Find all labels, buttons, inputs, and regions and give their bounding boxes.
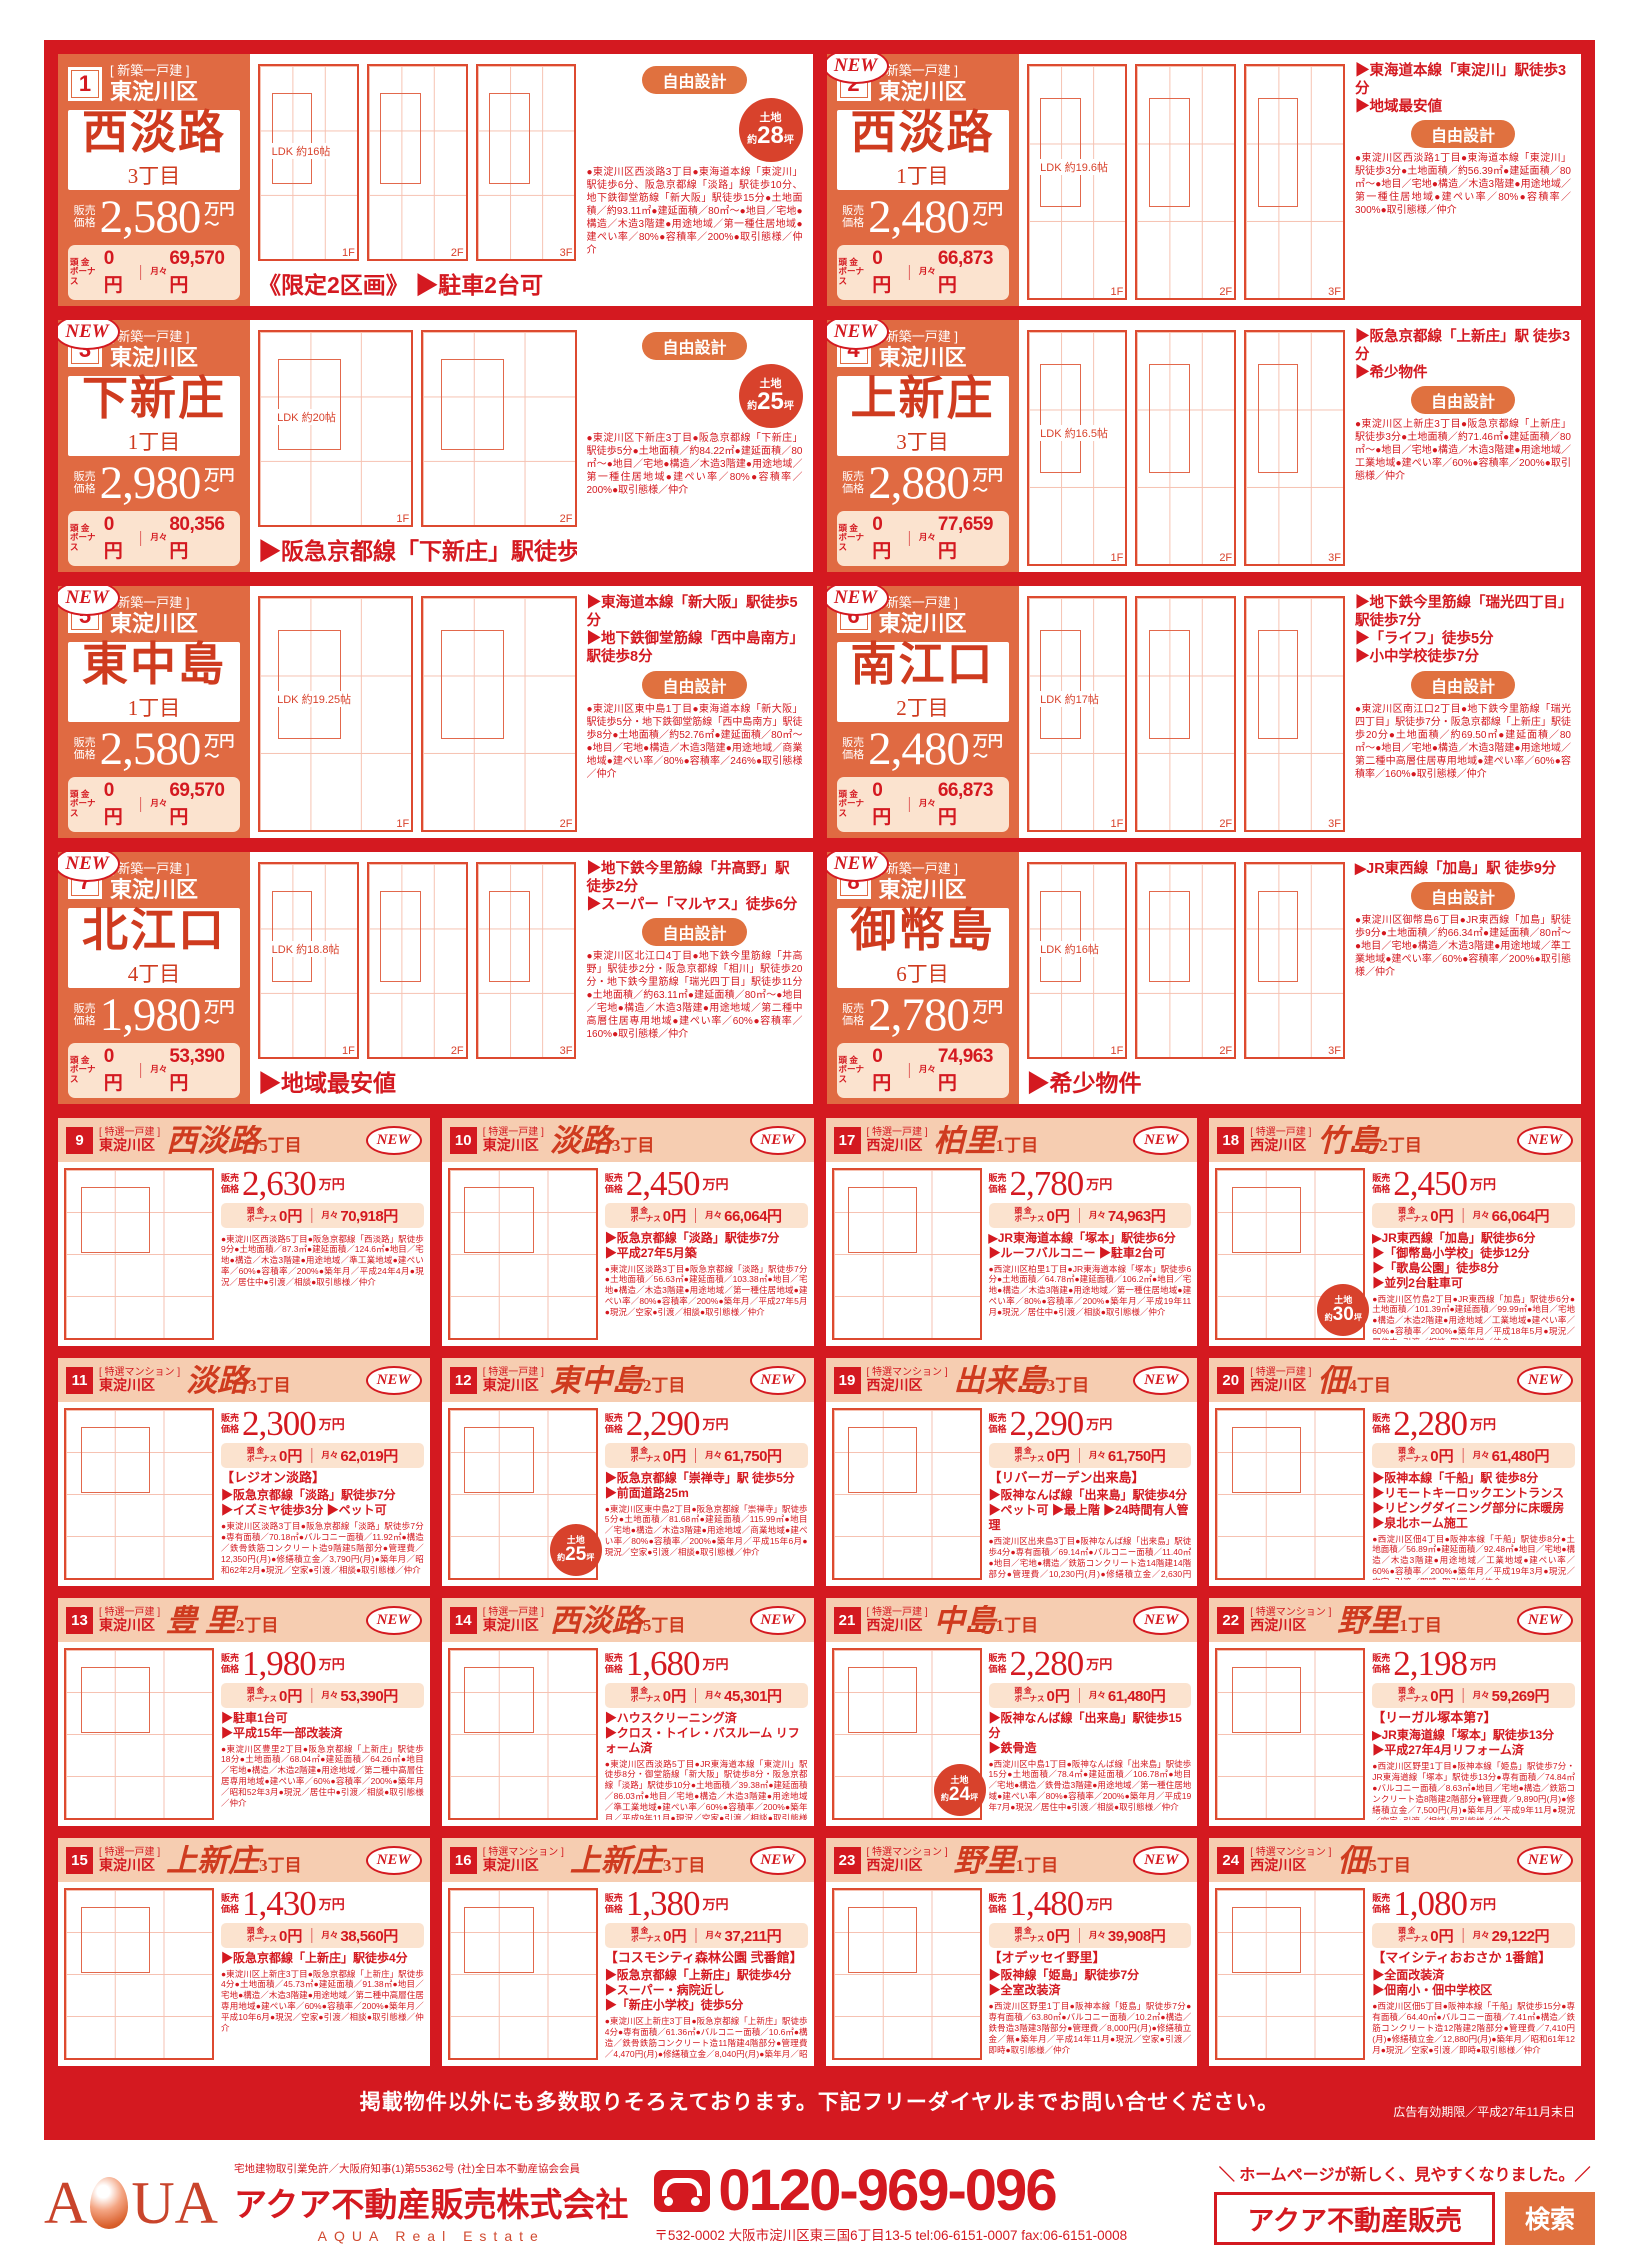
listing-number: 17 [834,1127,861,1154]
listing-ward: 東淀川区 [110,345,198,370]
feature-bullet: ▶佃南小・佃中学校区 [1372,1983,1575,1998]
listing-name: 柏里1丁目 [934,1125,1039,1156]
feature-bullet: ▶全室改装済 [989,1983,1192,1998]
new-badge: NEW [1517,1846,1573,1875]
listing-ward: 西淀川区 [1250,1138,1311,1153]
listing-name: 出来島3丁目 [954,1365,1090,1396]
price-row: 販売価格 2,580 万円〜 [68,728,240,770]
floor-plan [64,1168,214,1340]
feature-bullet: ▶ハウスクリーニング済 [605,1711,808,1726]
floor-plan: 2F [1135,596,1236,832]
monthly-value: 62,019円 [340,1445,397,1466]
listing-number: 10 [450,1127,477,1154]
building-name: 【マイシティおおさか 1番館】 [1372,1951,1575,1966]
feature-bullet: ▶JR東西線「加島」駅徒歩6分 [1372,1231,1575,1246]
floor-label: 1F [1110,286,1123,298]
feature-bullet: ▶小中学校徒歩7分 [1355,648,1571,666]
price-value: 2,450 [1393,1168,1467,1200]
listing-name: 南江口 [851,642,995,688]
listing-description: ●東淀川区淡路3丁目●阪急京都線「淡路」駅徒歩7分●専有面積／70.18㎡●バル… [221,1521,424,1580]
monthly-payment: 頭 金ボーナス 0円｜ 月々 53,390円 [221,1683,424,1708]
property-listing-big: NEW 6 [ 新築一戸建 ] 東淀川区 南江口 2丁目 販売価格 2,480 … [827,586,1582,838]
price-value: 2,880 [868,462,969,504]
price-value: 1,080 [1393,1888,1467,1920]
new-badge: NEW [366,1606,422,1635]
search-input[interactable]: アクア不動産販売 [1214,2192,1495,2245]
floor-plan: 2F [421,330,576,527]
listing-ward: 東淀川区 [99,1858,160,1873]
floor-plan [1215,1888,1365,2060]
property-listing-small: 14 [ 特選一戸建 ] 東淀川区 西淡路5丁目 NEW 販売価格 1,680 … [442,1598,814,1826]
listing-name-card: 西淡路 3丁目 [68,110,240,190]
feature-bullet: ▶希少物件 [1355,364,1571,382]
monthly-payment: 頭 金ボーナス 0円｜ 月々 61,750円 [605,1443,808,1468]
floor-label: 2F [1219,1045,1232,1057]
price-value: 1,980 [100,994,201,1036]
listing-header: 18 [ 特選一戸建 ] 西淀川区 竹島2丁目 NEW [1209,1118,1581,1162]
floor-plan: 2F [1135,64,1236,300]
flyer-page: { "shared": { "new_label": "NEW", "price… [0,0,1639,2267]
floor-plan-area: LDK 約16帖1F2F3F ▶希少物件 [1019,852,1354,1104]
floor-label: 1F [396,513,409,525]
price-row: 販売価格 2,980 万円〜 [68,462,240,504]
building-name: 【オデッセイ野里】 [989,1951,1192,1966]
monthly-value: 70,918円 [340,1205,397,1226]
listing-ward: 東淀川区 [483,1618,544,1633]
new-badge: NEW [1517,1606,1573,1635]
monthly-value: 61,750円 [1108,1445,1165,1466]
notice-strip: 掲載物件以外にも多数取りそろえております。下記フリーダイヤルまでお問い合せくださ… [58,2078,1581,2124]
listing-name: 佃5丁目 [1337,1845,1411,1876]
listing-ward: 東淀川区 [483,1138,544,1153]
monthly-payment: 頭 金ボーナス 0円｜ 月々 37,211円 [605,1923,808,1948]
free-design-badge: 自由設計 [1411,882,1515,910]
free-design-badge: 自由設計 [1411,671,1515,699]
monthly-value: 37,211円 [725,1925,782,1946]
property-listing-big: NEW 8 [ 新築一戸建 ] 東淀川区 御幣島 6丁目 販売価格 2,780 … [827,852,1582,1104]
feature-bullet: ▶リモートキーロックエントランス [1372,1486,1575,1501]
featured-listings-grid: 1 [ 新築一戸建 ] 東淀川区 西淡路 3丁目 販売価格 2,580 万円〜 … [58,54,1581,1104]
monthly-value: 53,390円 [169,1046,238,1095]
listing-header: 23 [ 特選マンション ] 西淀川区 野里1丁目 NEW [826,1838,1198,1882]
price-value: 2,630 [242,1168,316,1200]
room-label: LDK 約19.25帖 [275,691,353,707]
feature-bullet: ▶平成27年4月リフォーム済 [1372,1743,1575,1758]
listing-chome: 1丁目 [128,692,181,722]
feature-bullet: ▶平成27年5月築 [605,1246,808,1261]
listing-type: [ 新築一戸建 ] [879,862,967,877]
floor-label: 1F [396,818,409,830]
feature-bullet: ▶地下鉄今里筋線「瑞光四丁目」駅徒歩7分 [1355,594,1571,630]
land-area-badge: 土地 約28坪 [739,98,803,162]
feature-bullet: ▶リビングダイニング部分に床暖房 [1372,1501,1575,1516]
price-row: 販売価格 1,680 万円 [605,1648,808,1680]
listing-number: 24 [1217,1847,1244,1874]
listing-name: 西淡路5丁目 [166,1125,302,1156]
property-listing-big: NEW 7 [ 新築一戸建 ] 東淀川区 北江口 4丁目 販売価格 1,980 … [58,852,813,1104]
feature-column: ▶東海道本線「新大阪」駅徒歩5分▶地下鉄御堂筋線「西中島南方」駅徒歩8分 自由設… [585,586,813,838]
floor-plan: 3F [476,64,577,261]
new-badge: NEW [1133,1606,1189,1635]
listing-name: 下新庄 [82,376,226,422]
listing-type: [ 新築一戸建 ] [110,862,198,877]
property-listing-small: 10 [ 特選一戸建 ] 東淀川区 淡路3丁目 NEW 販売価格 2,450 万… [442,1118,814,1346]
feature-bullet: ▶地下鉄御堂筋線「西中島南方」駅徒歩8分 [587,630,803,666]
property-listing-small: 18 [ 特選一戸建 ] 西淀川区 竹島2丁目 NEW 販売価格 2,450 万… [1209,1118,1581,1346]
listing-ward: 西淀川区 [867,1138,928,1153]
listing-chome: 6丁目 [896,958,949,988]
listing-description: ●東淀川区東中島2丁目●阪急京都線「崇禅寺」駅徒歩5分●土地面積／81.68㎡●… [605,1504,808,1581]
listing-description: ●西淀川区柏里1丁目●JR東海道本線「塚本」駅徒歩6分●土地面積／64.78㎡●… [989,1264,1192,1341]
price-row: 販売価格 2,480 万円〜 [837,196,1009,238]
price-row: 販売価格 2,630 万円 [221,1168,424,1200]
floor-plan-area: LDK 約19.25帖1F2F [250,586,585,838]
floor-label: 1F [1110,552,1123,564]
property-listing-small: 19 [ 特選マンション ] 西淀川区 出来島3丁目 NEW 販売価格 2,29… [826,1358,1198,1586]
listing-description: ●西淀川区佃4丁目●阪神本線「千船」駅徒歩8分●土地面積／56.89㎡●建延面積… [1372,1534,1575,1581]
new-badge: NEW [1517,1126,1573,1155]
feature-bullet: ▶イズミヤ徒歩3分 ▶ペット可 [221,1503,424,1518]
floor-plan [448,1648,598,1820]
price-row: 販売価格 2,880 万円〜 [837,462,1009,504]
feature-column: ▶阪急京都線「上新庄」駅 徒歩3分▶希少物件 自由設計 土地 約坪 ●東淀川区上… [1353,320,1581,572]
listing-info-panel: 3 [ 新築一戸建 ] 東淀川区 下新庄 1丁目 販売価格 2,980 万円〜 … [58,320,250,572]
search-button[interactable]: 検索 [1505,2192,1595,2245]
feature-bullet: ▶クロス・トイレ・バスルーム リフォーム済 [605,1726,808,1756]
listing-description: ●東淀川区西淡路5丁目●JR東海道本線「東淀川」駅徒歩8分・御堂筋線「新大阪」駅… [605,1759,808,1821]
feature-bullet: ▶鉄骨造 [989,1741,1192,1756]
listing-number: 20 [1217,1367,1244,1394]
footer: A UA 宅地建物取引業免許／大阪府知事(1)第55362号 (社)全日本不動産… [44,2150,1595,2255]
listing-type: [ 新築一戸建 ] [110,64,198,79]
feature-bullet: ▶東海道本線「新大阪」駅徒歩5分 [587,594,803,630]
monthly-value: 61,750円 [724,1445,781,1466]
listing-number: 15 [66,1847,93,1874]
monthly-value: 61,480円 [1492,1445,1549,1466]
listing-description: ●東淀川区上新庄3丁目●阪急京都線「上新庄」駅徒歩4分●土地面積／45.73㎡●… [221,1969,424,2061]
freedial-icon [654,2170,710,2212]
property-listing-big: NEW 4 [ 新築一戸建 ] 東淀川区 上新庄 3丁目 販売価格 2,880 … [827,320,1582,572]
listing-ward: 東淀川区 [99,1618,160,1633]
listing-name-card: 上新庄 3丁目 [837,376,1009,456]
price-value: 1,680 [626,1648,700,1680]
feature-column: ▶JR東西線「加島」駅 徒歩9分 自由設計 土地 約坪 ●東淀川区御幣島6丁目●… [1353,852,1581,1104]
feature-column: 自由設計 土地 約25坪 ●東淀川区下新庄3丁目●阪急京都線「下新庄」駅徒歩5分… [585,320,813,572]
logo-letter-a: A [44,2173,87,2233]
floor-label: 1F [1110,1045,1123,1057]
listing-header: 20 [ 特選一戸建 ] 西淀川区 佃4丁目 NEW [1209,1358,1581,1402]
feature-bullet: ▶ペット可 ▶最上階 ▶24時間有人管理 [989,1503,1192,1533]
feature-bullet: ▶阪急京都線「上新庄」駅 徒歩3分 [1355,328,1571,364]
listing-ward: 西淀川区 [1250,1378,1311,1393]
listing-header: 14 [ 特選一戸建 ] 東淀川区 西淡路5丁目 NEW [442,1598,814,1642]
notice-text: 掲載物件以外にも多数取りそろえております。下記フリーダイヤルまでお問い合せくださ… [360,2086,1280,2116]
listing-header: 16 [ 特選マンション ] 東淀川区 上新庄3丁目 NEW [442,1838,814,1882]
floor-label: 3F [560,1045,573,1057]
listing-description: ●東淀川区上新庄3丁目●阪急京都線「上新庄」駅徒歩3分●土地面積／約71.46㎡… [1355,418,1571,566]
new-badge: NEW [750,1846,806,1875]
monthly-payment: 頭 金ボーナス 0円｜ 月々 66,064円 [1372,1203,1575,1228]
listing-headline: 《限定2区画》 ▶駐車2台可 [258,266,577,300]
listing-name: 上新庄3丁目 [166,1845,302,1876]
listing-chome: 3丁目 [128,160,181,190]
feature-bullet: ▶「歌島公園」徒歩8分 [1372,1261,1575,1276]
feature-bullet: ▶阪急京都線「淡路」駅徒歩7分 [221,1488,424,1503]
price-value: 2,300 [242,1408,316,1440]
building-name: 【リバーガーデン出来島】 [989,1471,1192,1486]
new-badge: NEW [1133,1126,1189,1155]
free-design-badge: 自由設計 [642,66,746,94]
floor-plan-area: LDK 約16帖1F2F3F 《限定2区画》 ▶駐車2台可 [250,54,585,306]
price-row: 販売価格 1,480 万円 [989,1888,1192,1920]
listing-ward: 東淀川区 [483,1858,564,1873]
listing-name: 西淡路 [82,110,226,156]
monthly-payment: 頭 金ボーナス 0円｜ 月々 66,064円 [605,1203,808,1228]
monthly-value: 53,390円 [340,1685,397,1706]
room-label: LDK 約16帖 [270,143,333,159]
price-value: 2,450 [626,1168,700,1200]
listing-name-card: 下新庄 1丁目 [68,376,240,456]
feature-column: 自由設計 土地 約28坪 ●東淀川区西淡路3丁目●東海道本線「東淀川」駅徒歩6分… [585,54,813,306]
price-row: 販売価格 2,290 万円 [605,1408,808,1440]
listing-number: 14 [450,1607,477,1634]
monthly-payment: 頭 金ボーナス 0円｜ 月々 61,480円 [1372,1443,1575,1468]
listing-type: [ 新築一戸建 ] [879,64,967,79]
property-listing-small: 12 [ 特選一戸建 ] 東淀川区 東中島2丁目 NEW 販売価格 2,290 … [442,1358,814,1586]
listing-description: ●西淀川区出来島3丁目●阪神なんば線「出来島」駅徒歩4分●専有面積／69.14㎡… [989,1536,1192,1580]
listing-ward: 東淀川区 [110,79,198,104]
price-row: 販売価格 2,480 万円〜 [837,728,1009,770]
listing-ward: 東淀川区 [483,1378,544,1393]
listing-name: 西淡路5丁目 [550,1605,686,1636]
listing-number: 22 [1217,1607,1244,1634]
listing-ward: 東淀川区 [879,877,967,902]
property-listing-big: NEW 3 [ 新築一戸建 ] 東淀川区 下新庄 1丁目 販売価格 2,980 … [58,320,813,572]
listing-info-panel: 1 [ 新築一戸建 ] 東淀川区 西淡路 3丁目 販売価格 2,580 万円〜 … [58,54,250,306]
monthly-value: 29,122円 [1492,1925,1549,1946]
price-value: 2,290 [626,1408,700,1440]
free-design-badge: 自由設計 [642,332,746,360]
feature-column: ▶地下鉄今里筋線「瑞光四丁目」駅徒歩7分▶「ライフ」徒歩5分▶小中学校徒歩7分 … [1353,586,1581,838]
land-area-badge: 土地 約24坪 [934,1764,986,1816]
room-label: LDK 約17帖 [1038,691,1101,707]
monthly-value: 74,963円 [938,1046,1007,1095]
monthly-value: 77,659円 [938,514,1007,563]
floor-plan: 2F [1135,862,1236,1059]
new-badge: NEW [1517,1366,1573,1395]
floor-plan: LDK 約17帖1F [1027,596,1128,832]
monthly-payment: 頭 金ボーナス 0円｜ 月々 45,301円 [605,1683,808,1708]
price-value: 2,280 [1010,1648,1084,1680]
floor-plan-area: LDK 約18.8帖1F2F3F ▶地域最安値 [250,852,585,1104]
listing-type: [ 新築一戸建 ] [879,330,967,345]
selected-listings-grid: 9 [ 特選一戸建 ] 東淀川区 西淡路5丁目 NEW 販売価格 2,630 万… [58,1118,1581,2066]
floor-plan: 3F [1244,64,1345,300]
monthly-payment: 頭 金ボーナス 0円｜ 月々 61,750円 [989,1443,1192,1468]
listing-ward: 西淀川区 [1250,1618,1331,1633]
floor-label: 1F [1110,818,1123,830]
listing-name-card: 南江口 2丁目 [837,642,1009,722]
listing-name-card: 東中島 1丁目 [68,642,240,722]
building-name: 【リーガル塚本第7】 [1372,1711,1575,1726]
company-name: アクア不動産販売株式会社 [234,2178,628,2226]
listing-name: 豊 里2丁目 [166,1605,278,1636]
new-badge: NEW [750,1126,806,1155]
listing-number: 9 [66,1127,93,1154]
monthly-payment: 頭 金ボーナス 0円｜ 月々 29,122円 [1372,1923,1575,1948]
listing-name: 御幣島 [851,908,995,954]
floor-label: 3F [1328,286,1341,298]
listing-ward: 東淀川区 [110,611,198,636]
listing-type: [ 新築一戸建 ] [110,330,198,345]
listing-number: 21 [834,1607,861,1634]
listing-description: ●東淀川区西淡路1丁目●東海道本線「東淀川」駅徒歩3分●土地面積／約56.39㎡… [1355,152,1571,300]
monthly-payment: 頭 金ボーナス 0円｜ 月々 77,659円 [837,511,1009,566]
monthly-payment: 頭 金ボーナス 0円｜ 月々 62,019円 [221,1443,424,1468]
company-name-en: AQUA Real Estate [234,2228,628,2244]
floor-label: 2F [451,1045,464,1057]
listing-name: 野里1丁目 [1337,1605,1442,1636]
price-row: 販売価格 2,780 万円〜 [837,994,1009,1036]
feature-bullet: ▶並列2台駐車可 [1372,1276,1575,1291]
feature-bullet: ▶阪神本線「千船」駅 徒歩8分 [1372,1471,1575,1486]
feature-bullet: ▶「ライフ」徒歩5分 [1355,630,1571,648]
feature-bullet: ▶阪神なんば線「出来島」駅徒歩4分 [989,1488,1192,1503]
property-listing-small: 17 [ 特選一戸建 ] 西淀川区 柏里1丁目 NEW 販売価格 2,780 万… [826,1118,1198,1346]
homepage-note: ＼ ホームページが新しく、見やすくなりました。／ [1219,2161,1591,2185]
listing-description: ●東淀川区西淡路3丁目●東海道本線「東淀川」駅徒歩6分、阪急京都線「淡路」駅徒歩… [587,166,803,300]
property-listing-small: 22 [ 特選マンション ] 西淀川区 野里1丁目 NEW 販売価格 2,198… [1209,1598,1581,1826]
price-row: 販売価格 2,300 万円 [221,1408,424,1440]
floor-plan [832,1408,982,1580]
listing-ward: 東淀川区 [879,345,967,370]
listing-number: 13 [66,1607,93,1634]
price-value: 2,580 [100,196,201,238]
feature-bullet: ▶阪急京都線「崇禅寺」駅 徒歩5分 [605,1471,808,1486]
feature-bullet: ▶JR東西線「加島」駅 徒歩9分 [1355,860,1571,878]
monthly-value: 69,570円 [169,248,238,297]
listing-description: ●東淀川区豊里2丁目●阪急京都線「上新庄」駅徒歩18分●土地面積／68.04㎡●… [221,1744,424,1821]
listing-description: ●西淀川区野里1丁目●阪神本線「姫島」駅徒歩7分・JR東海道線「塚本」駅徒歩13… [1372,1761,1575,1820]
listing-name-card: 御幣島 6丁目 [837,908,1009,988]
listing-headline: ▶阪急京都線「下新庄」駅徒歩5分 [258,532,577,566]
price-row: 販売価格 1,980 万円 [221,1648,424,1680]
monthly-payment: 頭 金ボーナス 0円｜ 月々 74,963円 [837,1043,1009,1098]
listing-info-panel: 4 [ 新築一戸建 ] 東淀川区 上新庄 3丁目 販売価格 2,880 万円〜 … [827,320,1019,572]
price-row: 販売価格 1,430 万円 [221,1888,424,1920]
listing-name: 西淡路 [851,110,995,156]
floor-plan: 2F [367,862,468,1059]
flyer-frame: 1 [ 新築一戸建 ] 東淀川区 西淡路 3丁目 販売価格 2,580 万円〜 … [44,40,1595,2140]
listing-description: ●西淀川区中島1丁目●阪神なんば線「出来島」駅徒歩15分●土地面積／78.4㎡●… [989,1759,1192,1821]
listing-info-panel: 7 [ 新築一戸建 ] 東淀川区 北江口 4丁目 販売価格 1,980 万円〜 … [58,852,250,1104]
monthly-value: 45,301円 [724,1685,781,1706]
listing-ward: 東淀川区 [879,79,967,104]
listing-header: 13 [ 特選一戸建 ] 東淀川区 豊 里2丁目 NEW [58,1598,430,1642]
new-badge: NEW [1133,1366,1189,1395]
listing-name: 中島1丁目 [934,1605,1039,1636]
listing-number: 18 [1217,1127,1244,1154]
price-row: 販売価格 1,380 万円 [605,1888,808,1920]
price-value: 2,580 [100,728,201,770]
floor-label: 2F [560,818,573,830]
room-label: LDK 約16帖 [1038,941,1101,957]
room-label: LDK 約20帖 [275,409,338,425]
new-badge: NEW [750,1606,806,1635]
monthly-value: 61,480円 [1108,1685,1165,1706]
listing-ward: 西淀川区 [867,1618,928,1633]
feature-bullet: ▶阪急京都線「淡路」駅徒歩7分 [605,1231,808,1246]
listing-name: 北江口 [82,908,226,954]
monthly-payment: 頭 金ボーナス 0円｜ 月々 61,480円 [989,1683,1192,1708]
monthly-payment: 頭 金ボーナス 0円｜ 月々 70,918円 [221,1203,424,1228]
price-row: 販売価格 2,780 万円 [989,1168,1192,1200]
monthly-payment: 頭 金ボーナス 0円｜ 月々 39,908円 [989,1923,1192,1948]
property-listing-small: 24 [ 特選マンション ] 西淀川区 佃5丁目 NEW 販売価格 1,080 … [1209,1838,1581,2066]
feature-bullet: ▶駐車1台可 [221,1711,424,1726]
egg-icon [90,2177,128,2229]
feature-bullet: ▶泉北ホーム施工 [1372,1516,1575,1531]
price-value: 2,780 [868,994,969,1036]
phone-number: 0120-969-096 [718,2162,1055,2220]
floor-plan [448,1888,598,2060]
price-row: 販売価格 2,290 万円 [989,1408,1192,1440]
aqua-logo: A UA [44,2173,218,2233]
floor-plan [832,1888,982,2060]
floor-plan-area: LDK 約20帖1F2F ▶阪急京都線「下新庄」駅徒歩5分 [250,320,585,572]
monthly-value: 38,560円 [340,1925,397,1946]
floor-plan: 2F [1135,330,1236,566]
land-area-badge: 土地 約25坪 [550,1524,602,1576]
floor-plan: 2F [421,596,576,832]
ad-expiry: 広告有効期限／平成27年11月末日 [1393,2103,1575,2120]
property-listing-small: 23 [ 特選マンション ] 西淀川区 野里1丁目 NEW 販売価格 1,480… [826,1838,1198,2066]
floor-plan-area: LDK 約16.5帖1F2F3F [1019,320,1354,572]
property-listing-big: NEW 2 [ 新築一戸建 ] 東淀川区 西淡路 1丁目 販売価格 2,480 … [827,54,1582,306]
floor-plan [1215,1408,1365,1580]
feature-bullet: ▶JR東海道本線「塚本」駅徒歩6分 [989,1231,1192,1246]
floor-plan: 3F [1244,330,1345,566]
price-row: 販売価格 2,450 万円 [1372,1168,1575,1200]
monthly-payment: 頭 金ボーナス 0円｜ 月々 69,570円 [68,777,240,832]
listing-header: 12 [ 特選一戸建 ] 東淀川区 東中島2丁目 NEW [442,1358,814,1402]
floor-plan [1215,1648,1365,1820]
listing-description: ●西淀川区野里1丁目●阪神本線「姫島」駅徒歩7分●専有面積／63.80㎡●バルコ… [989,2001,1192,2060]
listing-name: 竹島2丁目 [1317,1125,1422,1156]
floor-label: 1F [342,247,355,259]
listing-description: ●東淀川区御幣島6丁目●JR東西線「加島」駅徒歩9分●土地面積／約66.34㎡●… [1355,914,1571,1098]
floor-plan: LDK 約18.8帖1F [258,862,359,1059]
price-row: 販売価格 2,280 万円 [1372,1408,1575,1440]
license-text: 宅地建物取引業免許／大阪府知事(1)第55362号 (社)全日本不動産協会会員 [234,2161,628,2176]
new-badge: NEW [366,1126,422,1155]
listing-ward: 東淀川区 [110,877,198,902]
listing-ward: 西淀川区 [867,1378,948,1393]
floor-plan [832,1168,982,1340]
listing-header: 21 [ 特選一戸建 ] 西淀川区 中島1丁目 NEW [826,1598,1198,1642]
feature-bullet: ▶東海道本線「東淀川」駅徒歩3分 [1355,62,1571,98]
listing-name: 東中島2丁目 [550,1365,686,1396]
price-row: 販売価格 1,080 万円 [1372,1888,1575,1920]
floor-label: 2F [1219,552,1232,564]
property-listing-big: 1 [ 新築一戸建 ] 東淀川区 西淡路 3丁目 販売価格 2,580 万円〜 … [58,54,813,306]
free-design-badge: 自由設計 [1411,386,1515,414]
listing-number: 11 [66,1367,93,1394]
floor-plan [64,1648,214,1820]
listing-header: 9 [ 特選一戸建 ] 東淀川区 西淡路5丁目 NEW [58,1118,430,1162]
listing-ward: 東淀川区 [99,1378,180,1393]
listing-header: 24 [ 特選マンション ] 西淀川区 佃5丁目 NEW [1209,1838,1581,1882]
